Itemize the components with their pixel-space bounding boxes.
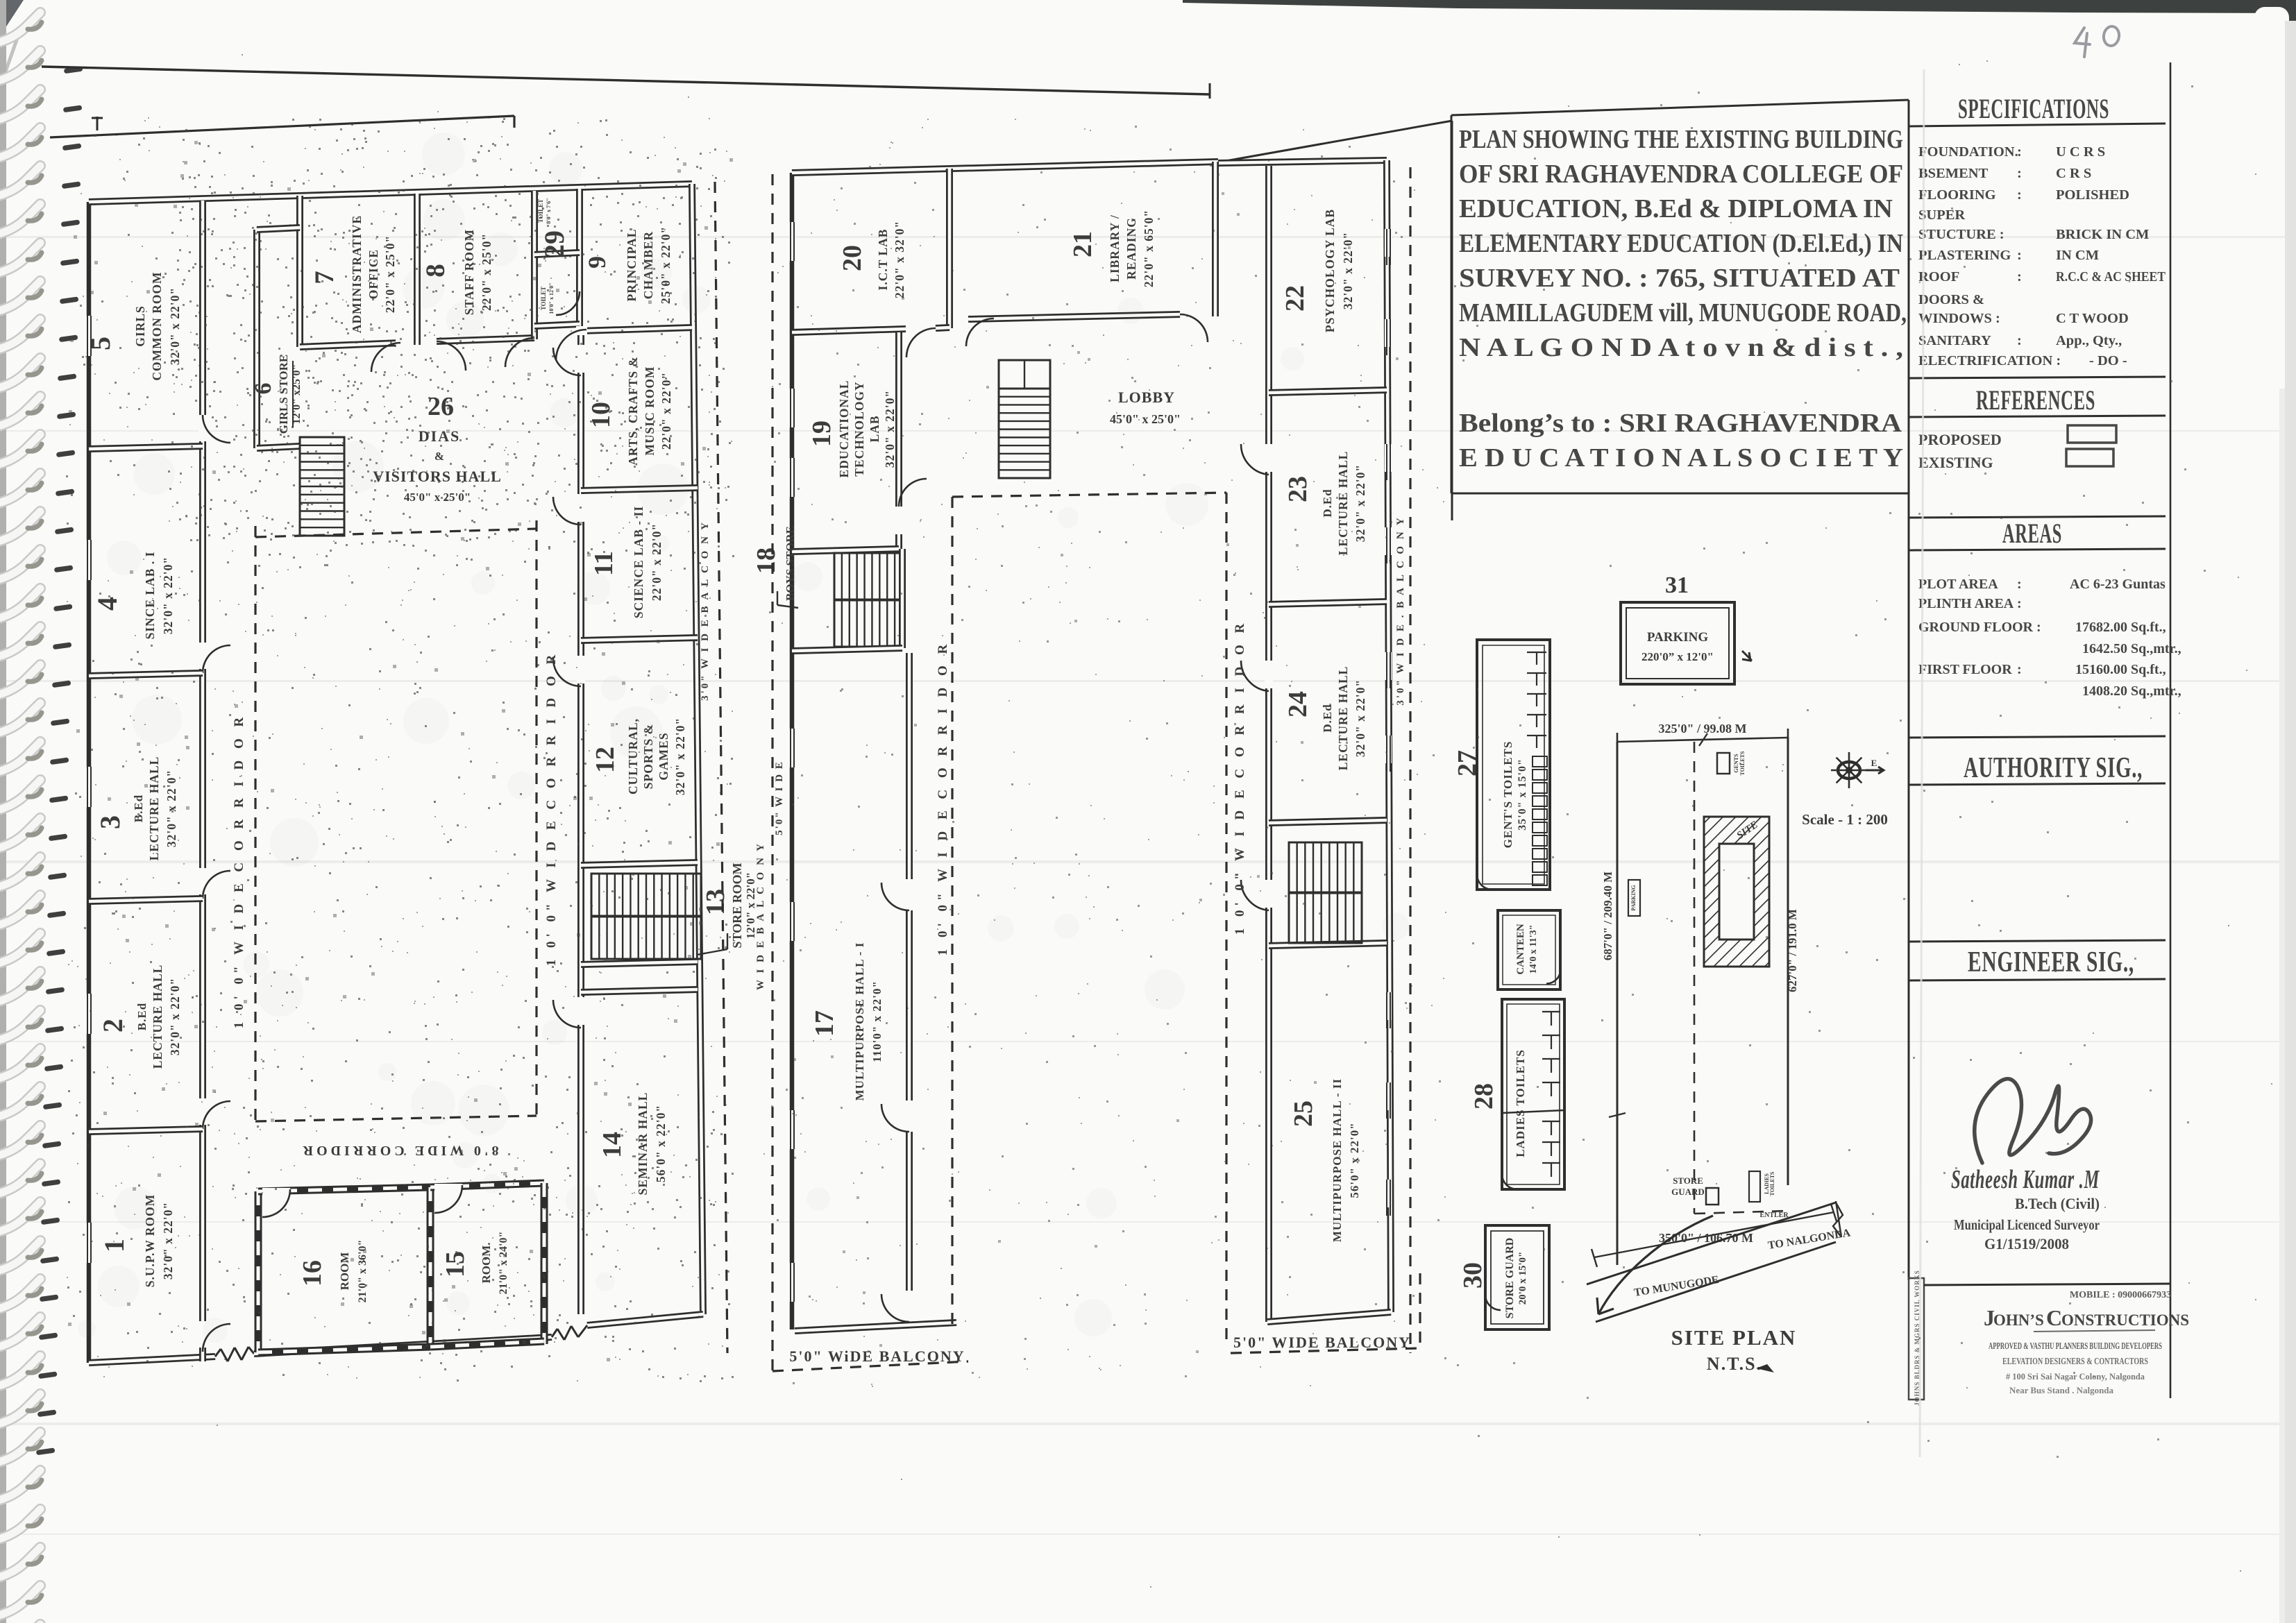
- svg-text:GENTS: GENTS: [1733, 754, 1739, 773]
- svg-text:C T WOOD: C T WOOD: [2056, 311, 2129, 326]
- svg-text:BOYS STORE: BOYS STORE: [784, 526, 797, 601]
- svg-text:17682.00 Sq.ft.,: 17682.00 Sq.ft.,: [2075, 620, 2166, 635]
- svg-text:DOORS &: DOORS &: [1918, 292, 1984, 307]
- svg-text:DIAS: DIAS: [419, 427, 461, 445]
- svg-text:GROUND FLOOR :: GROUND FLOOR :: [1918, 620, 2041, 635]
- svg-text:22: 22: [1281, 285, 1310, 312]
- svg-text:32'0" x 22'0": 32'0" x 22'0": [161, 1202, 175, 1280]
- svg-text:PSYCHOLOGY LAB: PSYCHOLOGY LAB: [1323, 209, 1337, 332]
- svg-text:6: 6: [251, 383, 276, 395]
- svg-text:9: 9: [583, 256, 611, 269]
- svg-text:PROPOSED: PROPOSED: [1918, 431, 2002, 448]
- svg-text:21: 21: [1068, 231, 1097, 257]
- svg-text:ROOM.: ROOM.: [480, 1242, 493, 1283]
- svg-text:PLINTH AREA: PLINTH AREA: [1918, 596, 2014, 611]
- svg-text:21'0" x 36'0": 21'0" x 36'0": [357, 1240, 369, 1303]
- svg-text:AC 6-23 Guntas: AC 6-23 Guntas: [2070, 577, 2166, 592]
- svg-text:MULTIPURPOSE HALL - II: MULTIPURPOSE HALL - II: [1331, 1078, 1344, 1242]
- svg-text:32'0" x 22'0": 32'0" x 22'0": [161, 556, 175, 634]
- svg-text:STORE: STORE: [1673, 1175, 1703, 1186]
- svg-text:READING: READING: [1124, 217, 1138, 280]
- svg-text:App., Qty.,: App., Qty.,: [2056, 333, 2122, 348]
- svg-text::: :: [2017, 269, 2022, 284]
- svg-text:SURVEY NO. : 765, SITUATED AT: SURVEY NO. : 765, SITUATED AT: [1459, 264, 1900, 293]
- svg-text:C: C: [2046, 1305, 2062, 1330]
- svg-text:COMMON ROOM: COMMON ROOM: [150, 271, 164, 380]
- svg-text:SINCE LAB . I: SINCE LAB . I: [143, 552, 157, 640]
- svg-text:3'0" W I D E . B A L C O N Y: 3'0" W I D E . B A L C O N Y: [1395, 516, 1406, 705]
- svg-text:OHN’S: OHN’S: [1993, 1311, 2044, 1329]
- svg-text:ROOF: ROOF: [1918, 269, 1959, 284]
- svg-text:12: 12: [591, 747, 620, 773]
- svg-text:3'0" W I D E B A L C O N Y: 3'0" W I D E B A L C O N Y: [700, 520, 711, 701]
- svg-text:AUTHORITY SIG.,: AUTHORITY SIG.,: [1964, 752, 2143, 784]
- svg-text::: :: [2017, 662, 2022, 677]
- svg-text:29: 29: [539, 230, 570, 258]
- svg-text:1 0' 0" W I D E C O R R I: 1 0' 0" W I D E C O R R I D O R: [1233, 620, 1247, 935]
- svg-text:ARTS, CRAFTS &: ARTS, CRAFTS &: [626, 356, 640, 466]
- svg-text:IN CM: IN CM: [2056, 248, 2099, 263]
- svg-text:1 0' 0" W I D E C O R R: 1 0' 0" W I D E C O R R I D O R: [232, 713, 246, 1029]
- svg-text:G1/1519/2008: G1/1519/2008: [1984, 1235, 2069, 1252]
- svg-text:TOILET: TOILET: [537, 199, 544, 223]
- svg-text:Satheesh Kumar .M: Satheesh Kumar .M: [1951, 1165, 2100, 1194]
- svg-text:32'0" x 22'0": 32'0" x 22'0": [168, 978, 182, 1055]
- svg-text:STORE ROOM: STORE ROOM: [730, 863, 744, 948]
- svg-text:1 0' 0" W I D E C O R R: 1 0' 0" W I D E C O R R I D O R: [544, 651, 559, 967]
- svg-text:3: 3: [94, 815, 126, 829]
- svg-text:GENT'S TOILETS: GENT'S TOILETS: [1501, 741, 1514, 849]
- svg-text:PLASTERING: PLASTERING: [1918, 248, 2011, 263]
- svg-text:23: 23: [1283, 476, 1312, 502]
- svg-text:627'0" / 191.0 M: 627'0" / 191.0 M: [1786, 909, 1799, 992]
- svg-text::: :: [2017, 596, 2022, 611]
- svg-text:220'0” x 12'0": 220'0” x 12'0": [1641, 650, 1714, 663]
- svg-text:ADMINISTRATIVE: ADMINISTRATIVE: [350, 215, 364, 333]
- svg-text:MOBILE : 09000667933: MOBILE : 09000667933: [2070, 1290, 2171, 1300]
- svg-text:15: 15: [441, 1251, 470, 1277]
- svg-text::: :: [2017, 333, 2022, 348]
- svg-text:20: 20: [838, 245, 867, 271]
- svg-text:MULTIPURPOSE HALL - I: MULTIPURPOSE HALL - I: [853, 942, 866, 1101]
- svg-text::: :: [2017, 187, 2022, 203]
- svg-text:PARKING: PARKING: [1630, 885, 1637, 910]
- svg-text:35'0" x 15'0": 35'0" x 15'0": [1517, 758, 1528, 831]
- svg-text:LECTURE HALL: LECTURE HALL: [1336, 666, 1350, 771]
- svg-text:5: 5: [85, 337, 116, 350]
- svg-text:E D U C A T I O N A L S O C: E D U C A T I O N A L S O C I E T Y: [1459, 443, 1903, 473]
- svg-text::: :: [2017, 577, 2022, 592]
- svg-text:MAMILLAGUDEM vill, MUNUGODE RO: MAMILLAGUDEM vill, MUNUGODE ROAD,: [1459, 298, 1907, 328]
- svg-text:EXISTING: EXISTING: [1918, 454, 1993, 471]
- svg-text:27: 27: [1453, 750, 1482, 776]
- svg-text:LAB: LAB: [868, 416, 881, 443]
- svg-text:B.Ed: B.Ed: [135, 1003, 149, 1030]
- svg-text:VISITORS HALL: VISITORS HALL: [373, 468, 502, 485]
- svg-text:16: 16: [298, 1260, 327, 1286]
- svg-text:W I D E B A L C O N Y: W I D E B A L C O N Y: [755, 842, 766, 990]
- svg-text:19: 19: [807, 420, 836, 447]
- svg-text:20'0 x 15'0": 20'0 x 15'0": [1517, 1252, 1528, 1305]
- svg-text:CANTEEN: CANTEEN: [1515, 924, 1526, 975]
- svg-text:TECHNOLOGY: TECHNOLOGY: [852, 381, 866, 476]
- svg-text:AREAS: AREAS: [2002, 518, 2062, 549]
- svg-text:ELECTRIFICATION :: ELECTRIFICATION :: [1918, 353, 2061, 368]
- svg-text:21'0" x 24'0": 21'0" x 24'0": [498, 1232, 509, 1295]
- svg-text:25: 25: [1289, 1101, 1318, 1127]
- svg-text:LADIES TOILETS: LADIES TOILETS: [1514, 1049, 1527, 1157]
- svg-text:22'0" x 22'0": 22'0" x 22'0": [659, 372, 673, 450]
- svg-text:17: 17: [810, 1010, 839, 1037]
- svg-text:18: 18: [752, 547, 781, 574]
- svg-text:TOILET: TOILET: [540, 287, 547, 310]
- svg-text:E: E: [1871, 758, 1877, 768]
- svg-text:5'0" W I D E: 5'0" W I D E: [774, 760, 785, 835]
- svg-text:10'0" x 12'0": 10'0" x 12'0": [548, 282, 555, 314]
- svg-text:TOILETS: TOILETS: [1769, 1171, 1775, 1196]
- svg-text:GUARD: GUARD: [1671, 1187, 1705, 1197]
- svg-text:EDUCATION, B.Ed & DIPLOMA IN: EDUCATION, B.Ed & DIPLOMA IN: [1459, 194, 1893, 223]
- svg-text:4: 4: [92, 597, 123, 611]
- svg-text:U C R S: U C R S: [2056, 144, 2105, 160]
- svg-text:24: 24: [1283, 691, 1312, 717]
- svg-text::: :: [2017, 144, 2022, 160]
- svg-text:STORE GUARD: STORE GUARD: [1504, 1238, 1516, 1319]
- svg-text:32'0" x 22'0": 32'0" x 22'0": [883, 390, 897, 468]
- svg-text:POLISHED: POLISHED: [2056, 187, 2129, 203]
- svg-text:14'0 x 11'3": 14'0 x 11'3": [1528, 925, 1539, 974]
- svg-text:I.C.T LAB: I.C.T LAB: [876, 229, 890, 291]
- svg-text:GIRLS STORE: GIRLS STORE: [277, 355, 290, 434]
- svg-text:Belong’s to : SRI RAGHAVENDR: Belong’s to : SRI RAGHAVENDRA: [1459, 409, 1902, 438]
- svg-text:BSEMENT: BSEMENT: [1918, 166, 1989, 181]
- svg-text:BRICK IN CM: BRICK IN CM: [2056, 227, 2149, 242]
- svg-text:APPROVED & VASTHU PLANNERS BUI: APPROVED & VASTHU PLANNERS BUILDING DEVE…: [1989, 1341, 2162, 1352]
- svg-text:&: &: [434, 450, 444, 463]
- svg-text:FIRST FLOOR: FIRST FLOOR: [1918, 662, 2012, 677]
- svg-text:LECTURE HALL: LECTURE HALL: [1336, 451, 1350, 556]
- svg-text:D.Ed: D.Ed: [1321, 704, 1334, 732]
- svg-text:PLAN SHOWING THE EXISTING BUIL: PLAN SHOWING THE EXISTING BUILDING: [1459, 125, 1903, 154]
- svg-text:REFERENCES: REFERENCES: [1976, 384, 2095, 416]
- svg-text:SANITARY: SANITARY: [1918, 333, 1991, 348]
- svg-text:22'0" x 32'0": 22'0" x 32'0": [893, 221, 906, 298]
- svg-text:26: 26: [428, 392, 454, 421]
- svg-text:D.Ed: D.Ed: [1321, 488, 1334, 517]
- svg-text:LOBBY: LOBBY: [1118, 389, 1175, 406]
- svg-text:13: 13: [701, 889, 730, 915]
- svg-text:ENTLER: ENTLER: [1759, 1212, 1789, 1219]
- svg-text:30: 30: [1458, 1262, 1487, 1289]
- svg-text:28: 28: [1469, 1083, 1499, 1110]
- svg-text:45'0" x 25'0": 45'0" x 25'0": [404, 491, 471, 504]
- svg-text:45'0" x 25'0": 45'0" x 25'0": [1110, 412, 1181, 426]
- svg-text:STUCTURE :: STUCTURE :: [1918, 227, 2004, 242]
- svg-text:110'0" x 22'0": 110'0" x 22'0": [870, 980, 884, 1062]
- svg-text:B.Ed: B.Ed: [132, 794, 145, 822]
- svg-text:N.T.S.: N.T.S.: [1707, 1354, 1762, 1374]
- svg-text:PLOT AREA: PLOT AREA: [1918, 577, 1998, 592]
- svg-text:7: 7: [310, 271, 339, 284]
- svg-text:5'0" WIDE BALCONY: 5'0" WIDE BALCONY: [1233, 1334, 1411, 1351]
- svg-text::: :: [2017, 248, 2022, 263]
- svg-text:# 100 Sri Sai Nagar Colony, Na: # 100 Sri Sai Nagar Colony, Nalgonda: [2006, 1371, 2145, 1382]
- svg-text:15160.00 Sq.ft.,: 15160.00 Sq.ft.,: [2075, 662, 2166, 677]
- svg-text:ROOM: ROOM: [338, 1252, 351, 1291]
- svg-text:Municipal Licenced Surveyor: Municipal Licenced Surveyor: [1954, 1216, 2100, 1233]
- svg-text:SITE PLAN: SITE PLAN: [1671, 1325, 1797, 1350]
- svg-text:C R S: C R S: [2056, 166, 2091, 181]
- svg-text:10: 10: [586, 402, 616, 428]
- svg-text:ONSTRUCTIONS: ONSTRUCTIONS: [2061, 1311, 2189, 1329]
- svg-text:GIRLS: GIRLS: [133, 305, 147, 346]
- svg-text:LECTURE HALL: LECTURE HALL: [151, 965, 164, 1069]
- svg-text::: :: [2017, 166, 2022, 181]
- svg-text:22'0" x 65'0": 22'0" x 65'0": [1142, 210, 1156, 287]
- svg-text:MUSIC ROOM: MUSIC ROOM: [643, 366, 657, 455]
- svg-text:Near Bus Stand . Nalgonda: Near Bus Stand . Nalgonda: [2009, 1385, 2113, 1395]
- svg-text:ELEMENTARY EDUCATION (D.El.Ed,: ELEMENTARY EDUCATION (D.El.Ed,) IN: [1459, 229, 1903, 258]
- svg-text:SCIENCE LAB - II: SCIENCE LAB - II: [632, 506, 645, 618]
- svg-text:FOUNDATION.: FOUNDATION.: [1918, 144, 2018, 160]
- svg-text:32'0" x 22'0": 32'0" x 22'0": [164, 770, 178, 847]
- svg-text:32'0" x 22'0": 32'0" x 22'0": [1341, 232, 1355, 309]
- svg-text:LECTURE HALL: LECTURE HALL: [147, 756, 161, 861]
- svg-text:1642.50 Sq.,mtr.,: 1642.50 Sq.,mtr.,: [2082, 641, 2181, 656]
- svg-text:B.Tech (Civil): B.Tech (Civil): [2015, 1195, 2100, 1212]
- svg-text:687'0" / 209.40 M: 687'0" / 209.40 M: [1601, 872, 1614, 960]
- svg-text:FLOORING: FLOORING: [1918, 187, 1996, 203]
- svg-text:Scale - 1 : 200: Scale - 1 : 200: [1802, 811, 1888, 828]
- svg-text:SPECIFICATIONS: SPECIFICATIONS: [1958, 93, 2109, 124]
- svg-text:WINDOWS :: WINDOWS :: [1918, 311, 2000, 326]
- svg-text:8'0" x 7'6": 8'0" x 7'6": [546, 198, 552, 223]
- svg-text:ELEVATION DESIGNERS & CONTRACT: ELEVATION DESIGNERS & CONTRACTORS: [2002, 1357, 2148, 1367]
- svg-text:OF SRI RAGHAVENDRA COLLEGE OF: OF SRI RAGHAVENDRA COLLEGE OF: [1459, 160, 1903, 189]
- svg-text:1408.20 Sq.,mtr.,: 1408.20 Sq.,mtr.,: [2082, 683, 2181, 699]
- svg-text:R.C.C & AC SHEET: R.C.C & AC SHEET: [2056, 269, 2166, 284]
- svg-text:LIBRARY /: LIBRARY /: [1108, 214, 1122, 282]
- svg-text:PARKING: PARKING: [1647, 630, 1709, 645]
- svg-text:SUPER: SUPER: [1918, 207, 1965, 223]
- svg-text:56'0" x 22'0": 56'0" x 22'0": [654, 1105, 668, 1182]
- svg-text:ENGINEER SIG.,: ENGINEER SIG.,: [1968, 946, 2134, 978]
- svg-text:5'0" WiDE BALCONY: 5'0" WiDE BALCONY: [789, 1348, 965, 1365]
- svg-text:325'0" / 99.08 M: 325'0" / 99.08 M: [1659, 722, 1747, 736]
- svg-text:EDUCATIONAL: EDUCATIONAL: [837, 380, 851, 478]
- svg-text:N A L G O N D A t o v n &: N A L G O N D A t o v n & d i s t . ,: [1459, 333, 1903, 362]
- svg-text:32'0" x 22'0": 32'0" x 22'0": [1353, 464, 1367, 542]
- svg-text:1 0' 0" W I D E C O R R I: 1 0' 0" W I D E C O R R I D O R: [936, 640, 950, 956]
- svg-text:31: 31: [1665, 572, 1689, 598]
- svg-text:32'0" x 22'0": 32'0" x 22'0": [1353, 679, 1367, 757]
- svg-text:PRINCIPAL: PRINCIPAL: [625, 229, 639, 302]
- svg-text:32'0" x 22'0": 32'0" x 22'0": [168, 287, 182, 365]
- svg-text:- DO -: - DO -: [2089, 353, 2127, 368]
